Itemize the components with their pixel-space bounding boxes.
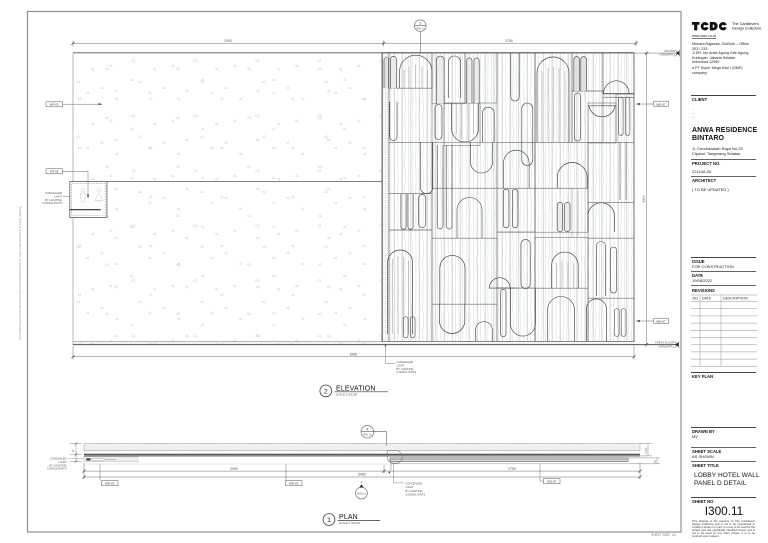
svg-text:6480: 6480 [350, 352, 358, 356]
svg-text:50: 50 [654, 460, 657, 463]
svg-text:3300: 3300 [642, 195, 646, 203]
svg-text:WD-07: WD-07 [656, 319, 666, 323]
svg-text:2990: 2990 [230, 467, 238, 471]
svg-text:BY LIGHTING: BY LIGHTING [406, 489, 423, 493]
svg-text:WD-07: WD-07 [547, 480, 557, 484]
svg-text:SCALE 1:50/100: SCALE 1:50/100 [336, 392, 358, 396]
svg-text:BY LIGHTING: BY LIGHTING [397, 367, 414, 371]
svg-text:CONSULTANTS: CONSULTANTS [397, 370, 417, 374]
svg-text:3750: 3750 [505, 39, 513, 43]
svg-text:SHEET SIZE : A1: SHEET SIZE : A1 [651, 533, 676, 537]
svg-text:3: 3 [419, 21, 421, 25]
svg-text:The Cantilevers: The Cantilevers [732, 22, 759, 26]
svg-text:DESCRIPTION: DESCRIPTION [723, 297, 748, 301]
svg-text:LIGHT: LIGHT [59, 460, 67, 464]
svg-text:WD-07: WD-07 [656, 102, 666, 106]
svg-text:CONCEALED: CONCEALED [397, 360, 414, 364]
svg-text:DATE: DATE [702, 297, 712, 301]
svg-text:WP-01: WP-01 [289, 482, 299, 486]
svg-text:LIGHT: LIGHT [54, 194, 62, 198]
svg-text:2: 2 [324, 388, 328, 395]
svg-text:+3300(AFFL): +3300(AFFL) [659, 52, 675, 56]
svg-text:ELEVATION: ELEVATION [336, 385, 376, 392]
svg-text:I300.11: I300.11 [357, 491, 367, 495]
svg-text:MT-05: MT-05 [50, 170, 59, 174]
svg-text:SCALE 1:50/100: SCALE 1:50/100 [339, 521, 361, 525]
svg-text:2750: 2750 [508, 467, 516, 471]
svg-text:CONSULTANTS: CONSULTANTS [47, 467, 67, 471]
svg-text:WP-01: WP-01 [105, 482, 115, 486]
svg-text:Design Collective: Design Collective [732, 26, 761, 30]
svg-text:LIGHT: LIGHT [406, 485, 414, 489]
svg-text:PLAN: PLAN [339, 514, 358, 521]
svg-text:CONSULTANTS: CONSULTANTS [42, 201, 62, 205]
svg-text:NO: NO [693, 297, 699, 301]
svg-text:LIGHT: LIGHT [397, 363, 405, 367]
svg-text:6480: 6480 [358, 473, 366, 477]
svg-text:CONSULTANTS: CONSULTANTS [406, 493, 426, 497]
svg-text:CEILING: CEILING [664, 49, 675, 53]
svg-text:Users\MV\Documents\TCDC\22110A: Users\MV\Documents\TCDC\22110A ANWA RESI… [18, 206, 22, 340]
svg-text:I300.12: I300.12 [416, 27, 425, 31]
svg-text:FINISH FLOOR: FINISH FLOOR [655, 341, 674, 345]
svg-text:WP-01: WP-01 [50, 103, 60, 107]
svg-text:CONCEALED: CONCEALED [45, 191, 62, 195]
svg-text:I300.12: I300.12 [363, 433, 372, 437]
svg-text:CONCEALED: CONCEALED [50, 457, 67, 461]
svg-text:20: 20 [72, 449, 75, 452]
svg-text:CONCEALED: CONCEALED [406, 481, 423, 485]
svg-text:1: 1 [327, 517, 331, 524]
svg-text:BY LIGHTING: BY LIGHTING [50, 463, 67, 467]
svg-text:2: 2 [361, 480, 363, 484]
svg-text:BY LIGHTING: BY LIGHTING [45, 198, 62, 202]
svg-text:4: 4 [366, 428, 368, 432]
svg-text:2,350: 2,350 [645, 447, 648, 454]
svg-text:2990: 2990 [224, 39, 232, 43]
svg-text:+0000(AFFL): +0000(AFFL) [658, 344, 674, 348]
